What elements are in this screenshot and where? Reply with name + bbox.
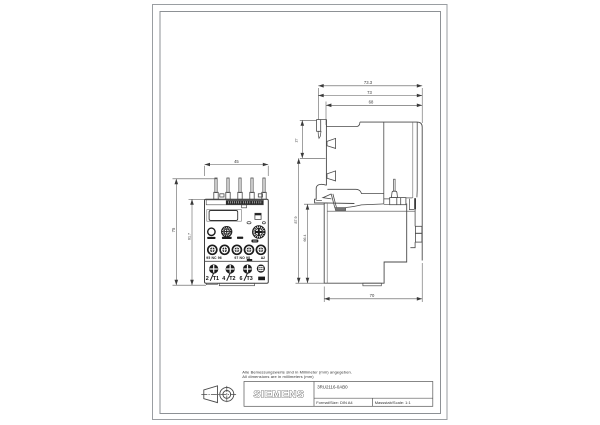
- svg-text:SIEMENS: SIEMENS: [254, 390, 305, 401]
- svg-text:68: 68: [369, 100, 374, 105]
- svg-text:Format/Size: DIN A4: Format/Size: DIN A4: [316, 400, 353, 405]
- svg-text:27: 27: [295, 138, 299, 142]
- svg-text:2: 2: [206, 276, 209, 282]
- svg-text:66.4: 66.4: [303, 235, 307, 242]
- svg-text:A2: A2: [261, 256, 265, 260]
- svg-text:73.3: 73.3: [364, 80, 373, 85]
- svg-text:45: 45: [234, 159, 239, 164]
- svg-text:87.9: 87.9: [294, 217, 298, 224]
- svg-text:T1: T1: [213, 276, 219, 282]
- svg-text:6: 6: [240, 276, 243, 282]
- svg-text:61.7: 61.7: [188, 233, 192, 240]
- svg-text:All dimensions are in millimet: All dimensions are in millimeters (mm): [242, 374, 314, 379]
- svg-text:95 NC 96: 95 NC 96: [206, 256, 222, 260]
- svg-text:Massstab/Scale: 1:1: Massstab/Scale: 1:1: [375, 400, 412, 405]
- svg-text:73: 73: [367, 90, 372, 95]
- svg-text:4: 4: [222, 276, 225, 282]
- svg-text:70: 70: [370, 293, 375, 298]
- svg-text:T3: T3: [247, 276, 253, 282]
- svg-text:75: 75: [171, 227, 176, 232]
- svg-text:T2: T2: [229, 276, 235, 282]
- svg-text:3RU2116-0AB0: 3RU2116-0AB0: [317, 385, 348, 390]
